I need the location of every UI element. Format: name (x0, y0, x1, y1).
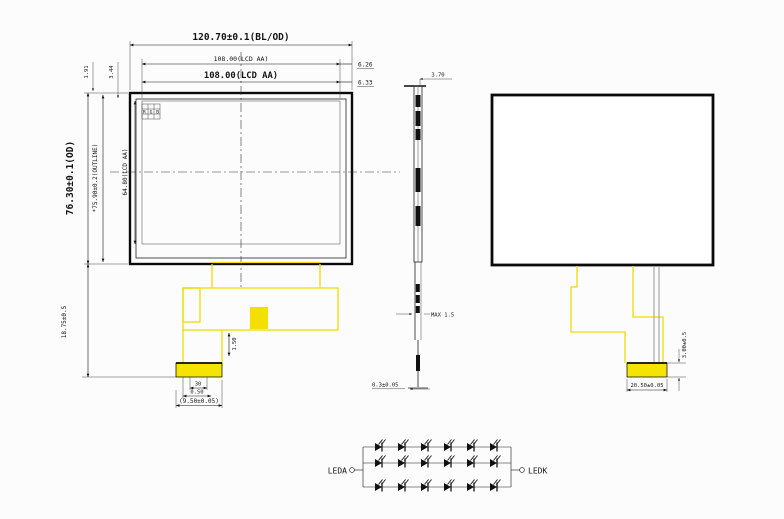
dim-back-connector-width: 20.50±0.05 (630, 383, 663, 389)
front-left-dimensions: 76.30±0.1(OD) *75.90±0.2(OUTLINE) 64.80(… (61, 93, 176, 377)
front-top-dimensions: 120.70±0.1(BL/OD) 108.00(LCD AA) 108.00(… (84, 32, 374, 98)
led-row-2 (375, 456, 501, 468)
back-fpc-connector (627, 363, 667, 377)
side-fpc-max-dimension: MAX 1.5 (396, 313, 454, 319)
dim-height-aa: 64.80(LCD AA) (122, 149, 129, 196)
dim-width-od: 120.70±0.1(BL/OD) (192, 32, 289, 43)
dim-height-od: 76.30±0.1(OD) (65, 141, 76, 215)
led-circuit: LEDA LEDK (328, 440, 548, 492)
side-thickness-dimension: 3.70 (420, 73, 452, 88)
led-cathode-label: LEDK (528, 467, 547, 476)
dim-pin-pitch: 0.50 (190, 390, 203, 396)
pixel-structure-mark: RGB (142, 104, 160, 119)
fpc-connector-dimensions: 30 0.50 (9.50±0.05) (176, 377, 222, 408)
drawing-canvas: RGB 120.70±0.1(BL/OD) 108.00(LCD AA) 108… (0, 0, 784, 519)
dim-top-offset-b: 3.44 (109, 65, 115, 79)
dim-top-offset-a: 1.91 (84, 65, 90, 78)
front-view: RGB 120.70±0.1(BL/OD) 108.00(LCD AA) 108… (61, 32, 400, 408)
dim-connector-width: (9.50±0.05) (179, 398, 219, 405)
led-row-1 (375, 440, 501, 452)
dim-fpc-drop: 18.75±0.5 (61, 305, 68, 338)
back-fpc-edge-left (571, 266, 625, 363)
fpc-stiffener-hatch (183, 288, 200, 322)
led-cathode-terminal (520, 468, 525, 473)
dim-thickness: 3.70 (431, 73, 444, 79)
dim-fpc-max: MAX 1.5 (431, 313, 454, 319)
dim-tail-thickness: 0.3±0.05 (372, 383, 399, 389)
back-connector-width-dimension: 20.50±0.05 (627, 379, 667, 392)
dim-back-connector-offset: 3.00±0.5 (682, 332, 688, 359)
dim-pin-count: 30 (195, 382, 202, 388)
back-view: 20.50±0.05 3.00±0.5 (492, 95, 713, 392)
dim-offset-right-bottom: 6.33 (358, 80, 373, 87)
fpc-connector (176, 363, 222, 377)
side-view: 3.70 MAX 1.5 0.3±0.05 (372, 73, 454, 390)
front-fpc: 1.50 30 0.50 (9.50±0.05) (176, 263, 338, 409)
back-outline-rect (492, 95, 713, 265)
dim-width-aa: 108.00(LCD AA) (204, 71, 278, 81)
back-connector-offset-dimension: 3.00±0.5 (667, 332, 688, 391)
dim-offset-right-top: 6.26 (358, 62, 373, 69)
led-anode-terminal (350, 468, 355, 473)
dim-width-aa-ref: 108.00(LCD AA) (214, 55, 269, 63)
pixel-mark-label: RGB (143, 110, 159, 116)
led-anode-label: LEDA (328, 467, 347, 476)
side-view-fpc-fold-blocks (416, 284, 420, 313)
dim-fpc-tail: 1.50 (232, 337, 238, 350)
lcd-outline-drawing: RGB 120.70±0.1(BL/OD) 108.00(LCD AA) 108… (0, 0, 784, 519)
led-row-3 (375, 480, 501, 492)
fpc-component-pad (250, 307, 268, 329)
dim-height-outline: *75.90±0.2(OUTLINE) (92, 144, 99, 213)
